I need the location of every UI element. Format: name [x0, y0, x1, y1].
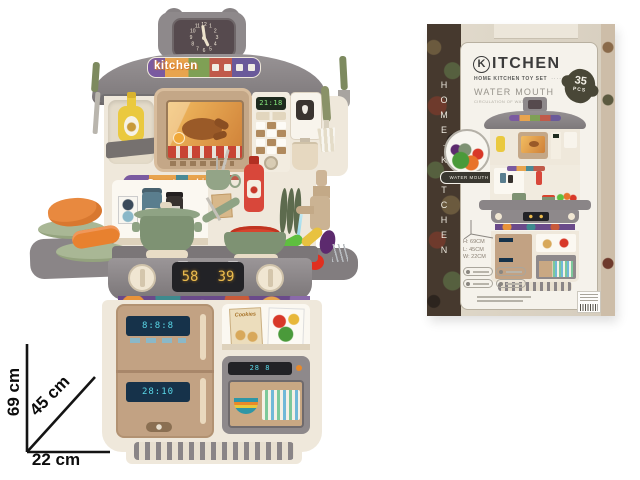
- pieces-unit: PCS: [564, 85, 595, 95]
- hanging-cup: [206, 170, 230, 190]
- mini-dispenser: [564, 132, 577, 148]
- control-panel-keypad: [256, 122, 286, 154]
- box-front-panel: K ITCHEN HOME KITCHEN TOY SET ········· …: [460, 42, 598, 310]
- toy-fork-handle: [321, 86, 331, 122]
- water-drop-icon: [302, 105, 308, 114]
- box-title: K ITCHEN: [473, 55, 561, 73]
- clock-number: 3: [216, 35, 219, 41]
- mini-dishwasher: [536, 255, 576, 279]
- mini-mid-section: [490, 165, 580, 205]
- recipe-card: [118, 196, 138, 224]
- control-panel-buttons: [256, 112, 286, 120]
- mini-banner: [509, 115, 561, 121]
- cookies-box: Cookies: [229, 307, 263, 347]
- mini-pantry-shelf: [536, 234, 576, 252]
- control-panel-dial: [264, 156, 278, 170]
- mini-oven-window: [521, 136, 545, 153]
- box-subtitle-row: HOME KITCHEN TOY SET ·········: [474, 76, 575, 82]
- mini-stove-display: [523, 212, 549, 221]
- box-size-length: L: 45CM: [463, 247, 486, 255]
- stove-display-right-value: 39: [218, 269, 235, 285]
- clock-number: 4: [214, 42, 217, 48]
- fridge-logo: [146, 422, 172, 432]
- toy-cup: [292, 142, 318, 170]
- box-feature-title: WATER MOUTH: [474, 87, 554, 97]
- keypad-key: [267, 147, 276, 154]
- dispenser-screen: [296, 100, 314, 120]
- faucet-top: [316, 170, 327, 186]
- mini-jar: [500, 173, 506, 183]
- clock-number: 8: [191, 42, 194, 48]
- ketchup-label: [247, 180, 261, 198]
- mini-fridge-display: [499, 238, 513, 242]
- stove-knob-right: [256, 264, 284, 292]
- hanging-hook: [216, 156, 218, 171]
- feature-badge: [496, 279, 526, 288]
- dishwasher-power-light: [296, 365, 302, 371]
- keypad-key: [277, 139, 286, 146]
- banner-icon: [236, 64, 243, 71]
- pot-handle: [132, 222, 140, 232]
- hanging-cup-handle: [229, 174, 241, 188]
- feature-badge: [463, 267, 493, 276]
- oil-bottle-label: [124, 116, 139, 136]
- control-panel-display: 21:18: [256, 97, 286, 110]
- keypad-key: [277, 122, 286, 129]
- mini-oven: [518, 132, 548, 159]
- toy-whisk: [332, 244, 348, 262]
- box-title-initial: K: [473, 56, 490, 73]
- keypad-key: [256, 130, 265, 137]
- stove-display-left-value: 58: [182, 269, 199, 285]
- clock-number: 7: [196, 46, 199, 52]
- mini-control-panel: [551, 132, 561, 159]
- mini-decor-band: [495, 224, 575, 230]
- feature-badge: [496, 267, 526, 276]
- fridge-buttons: [130, 338, 186, 343]
- cookies-box-label: Cookies: [230, 311, 260, 319]
- mini-jar: [508, 175, 513, 183]
- oil-bottle-cap: [127, 92, 136, 98]
- mini-stove: [491, 210, 579, 223]
- banner-icon: [224, 64, 231, 71]
- oven-window: [166, 100, 244, 160]
- feature-badge: [463, 279, 493, 288]
- box-kitchen-artwork: [479, 97, 591, 295]
- striped-cloth: [168, 146, 242, 158]
- banner-icon: [248, 64, 255, 71]
- toy-spatula-handle: [339, 56, 348, 90]
- keypad-key: [267, 122, 276, 129]
- box-side-text: HOME·KITCHEN: [439, 80, 449, 260]
- width-dimension-label: 22 cm: [16, 450, 96, 470]
- clock-number: 5: [209, 46, 212, 52]
- clock-number: 2: [214, 29, 217, 35]
- pot-handle: [194, 222, 202, 232]
- mini-oil-bottle: [496, 136, 505, 152]
- mini-counter: [479, 200, 591, 210]
- faucet-spout: [296, 206, 314, 214]
- fridge-handle-top: [200, 314, 206, 360]
- keypad-key: [256, 139, 265, 146]
- mini-dishwasher-window: [539, 261, 573, 277]
- fridge-door-divider: [116, 370, 214, 373]
- fridge-display-top: 8:8:8: [126, 316, 190, 336]
- pantry-shelf-board: [222, 344, 310, 350]
- cooking-pot: [140, 216, 194, 252]
- fine-print-line: [477, 296, 531, 298]
- lemon-slice: [173, 132, 185, 144]
- vegetable-card: [267, 307, 304, 346]
- fridge-handle-bottom: [200, 378, 206, 424]
- kitchen-banner-label: kitchen: [154, 60, 198, 72]
- fridge-display-bottom: 28:10: [126, 382, 190, 402]
- clock-number: 1: [209, 24, 212, 30]
- box-top-flap: [494, 24, 578, 39]
- keypad-key: [256, 147, 265, 154]
- box-size-block: H: 69CM L: 45CM W: 22CM: [463, 239, 486, 262]
- clock-number: 9: [190, 35, 193, 41]
- clock-face: 121234567891011: [172, 18, 236, 58]
- dishwasher-plate-rack: [262, 390, 300, 420]
- box-title-rest: ITCHEN: [492, 55, 561, 73]
- mini-clock: [523, 97, 547, 112]
- dishwasher-display: 28 8: [228, 362, 292, 375]
- kitchen-banner: kitchen: [147, 57, 261, 78]
- keypad-key: [267, 139, 276, 146]
- keypad-key: [256, 122, 265, 129]
- frying-pan: [224, 232, 286, 256]
- mini-fridge-display: [499, 258, 513, 262]
- mini-clock-face: [528, 100, 542, 109]
- base-vent-slats: [134, 442, 294, 460]
- barcode-text-lines: [580, 294, 598, 302]
- box-right-edge: [601, 24, 615, 316]
- feature-badges: [463, 267, 526, 288]
- stove-display: 58 39: [172, 262, 244, 292]
- stove-knob-left: [128, 264, 156, 292]
- size-axis-icon: [461, 217, 497, 241]
- mini-chicken: [529, 141, 539, 147]
- mini-stove-knob: [568, 213, 575, 220]
- mini-ketchup: [536, 171, 542, 185]
- product-photo: 69 cm 45 cm 22 cm 121234567891011 kitche…: [0, 0, 640, 480]
- box-size-width: W: 22CM: [463, 254, 486, 262]
- box-subtitle: HOME KITCHEN TOY SET: [474, 76, 547, 82]
- keypad-key: [267, 130, 276, 137]
- box-size-height: H: 69CM: [463, 239, 486, 247]
- mini-smart-sign: [507, 166, 545, 171]
- barcode-bars: [580, 304, 598, 311]
- keypad-key: [277, 147, 286, 154]
- box-fine-print: [477, 296, 531, 304]
- barcode-label: [577, 291, 601, 313]
- fine-print-line: [477, 300, 523, 302]
- keypad-key: [277, 130, 286, 137]
- banner-icon: [212, 64, 219, 71]
- clock-center-dot: [202, 36, 206, 40]
- clock-number: 11: [195, 24, 200, 30]
- mini-control-display: [553, 134, 559, 138]
